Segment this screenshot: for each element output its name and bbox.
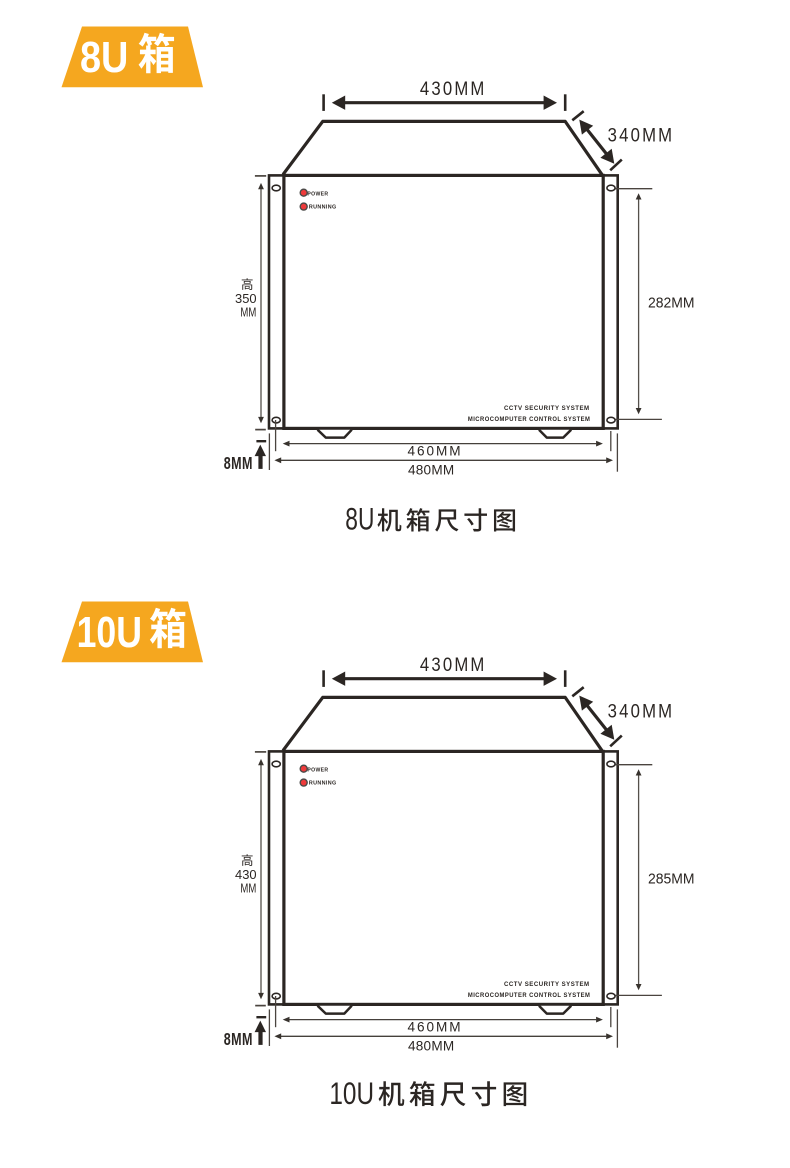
svg-text:RUNNING: RUNNING [309, 780, 337, 786]
svg-text:POWER: POWER [307, 191, 328, 197]
svg-text:282MM: 282MM [648, 295, 695, 311]
svg-text:430MM: 430MM [420, 654, 487, 675]
svg-text:460MM: 460MM [408, 443, 463, 458]
svg-text:285MM: 285MM [648, 871, 695, 887]
svg-text:MICROCOMPUTER CONTROL SYSTEM: MICROCOMPUTER CONTROL SYSTEM [468, 416, 591, 423]
svg-text:480MM: 480MM [408, 1038, 454, 1053]
svg-text:430MM: 430MM [420, 78, 487, 99]
svg-text:MM: MM [240, 882, 256, 896]
svg-text:10U: 10U [329, 1075, 374, 1111]
svg-text:340MM: 340MM [608, 125, 675, 146]
svg-text:8MM: 8MM [224, 1030, 253, 1050]
svg-text:480MM: 480MM [408, 462, 454, 477]
svg-text:CCTV SECURITY SYSTEM: CCTV SECURITY SYSTEM [504, 981, 590, 988]
svg-text:MM: MM [240, 306, 256, 320]
svg-text:8U: 8U [345, 501, 374, 537]
svg-text:8U: 8U [80, 32, 128, 81]
svg-text:340MM: 340MM [608, 701, 675, 722]
svg-text:RUNNING: RUNNING [309, 204, 337, 210]
svg-text:CCTV SECURITY SYSTEM: CCTV SECURITY SYSTEM [504, 405, 590, 412]
svg-text:430: 430 [235, 867, 257, 882]
svg-text:460MM: 460MM [408, 1019, 463, 1034]
svg-text:350: 350 [235, 291, 257, 306]
svg-text:10U: 10U [77, 609, 142, 657]
svg-text:8MM: 8MM [224, 454, 253, 474]
svg-text:MICROCOMPUTER CONTROL SYSTEM: MICROCOMPUTER CONTROL SYSTEM [468, 992, 591, 999]
svg-text:POWER: POWER [307, 767, 328, 773]
